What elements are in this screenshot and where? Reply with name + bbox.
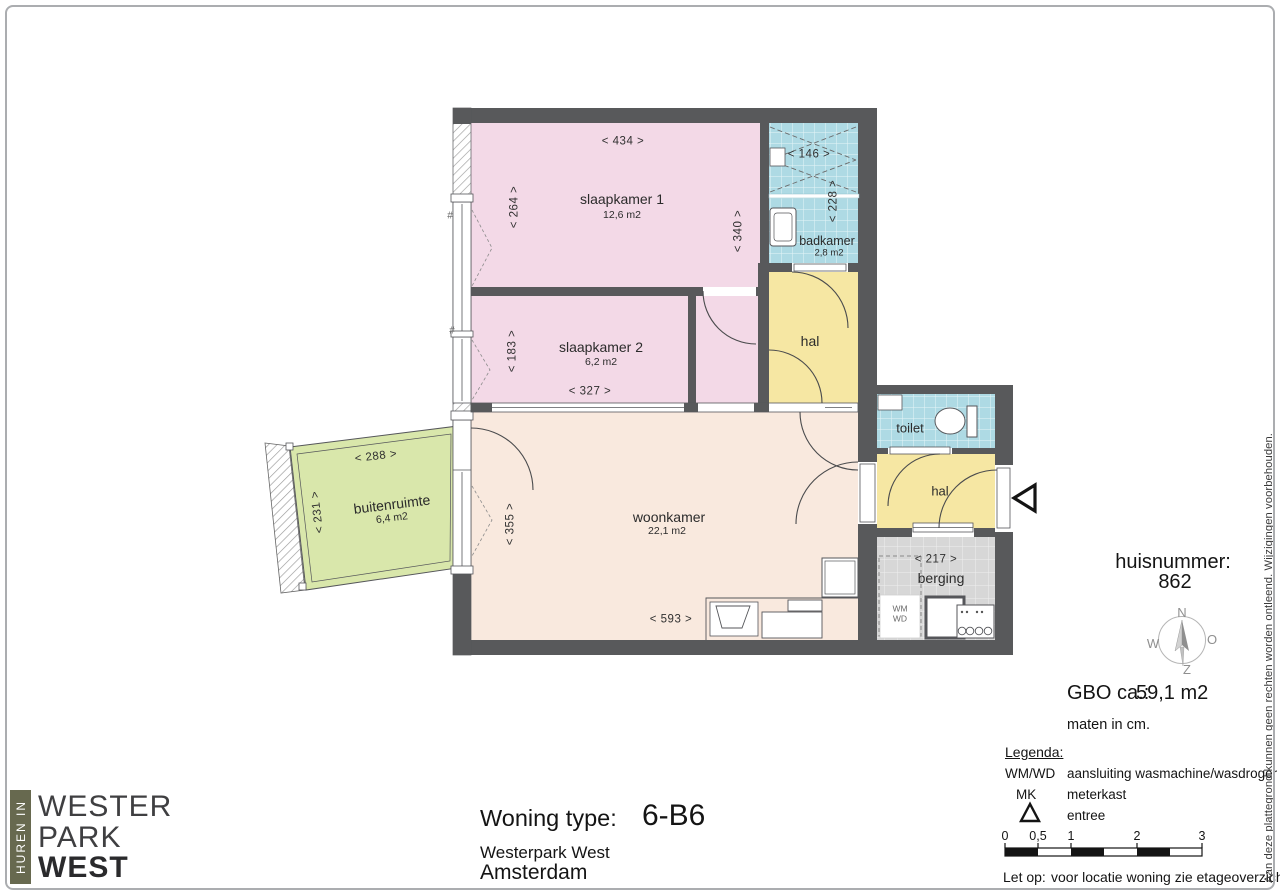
project-name: Westerpark West <box>480 843 610 863</box>
compass-east: O <box>1207 632 1217 647</box>
huisnummer-value: 862 <box>1158 571 1191 593</box>
room-label-berging: berging <box>918 571 965 587</box>
legend-key-mk: MK <box>1016 787 1036 802</box>
section-mark-1: # <box>447 210 453 221</box>
dim-593: < 593 > <box>650 614 693 627</box>
shower-unit-icon <box>770 148 785 166</box>
logo-huren-in-strip: HUREN IN <box>10 790 31 884</box>
dim-146: < 146 > <box>788 149 831 162</box>
letop-label: Let op: <box>1003 869 1046 885</box>
compass-rose: N O W Z <box>1147 605 1217 677</box>
dim-340: < 340 > <box>733 210 746 253</box>
entrance-door <box>997 468 1010 528</box>
section-mark-2: # <box>449 325 455 336</box>
legend-key-wmwd: WM/WD <box>1005 766 1055 781</box>
svg-text:1: 1 <box>1068 829 1075 843</box>
room-label-toilet: toilet <box>896 422 923 437</box>
room-label-woonkamer: woonkamer <box>633 510 705 526</box>
room-label-slaapkamer2: slaapkamer 2 <box>559 340 643 356</box>
svg-text:0,5: 0,5 <box>1029 829 1046 843</box>
entree-triangle-icon <box>1014 485 1035 511</box>
room-area-badkamer: 2,8 m2 <box>814 249 843 260</box>
room-label-badkamer: badkamer <box>799 234 855 248</box>
svg-text:3: 3 <box>1199 829 1206 843</box>
floorplan-page: { "page": { "disclaimer": "Aan deze plat… <box>0 0 1280 895</box>
dishwasher-icon <box>762 612 822 638</box>
compass-west: W <box>1147 636 1160 651</box>
compass-south: Z <box>1183 662 1191 677</box>
room-label-slaapkamer1: slaapkamer 1 <box>580 192 664 208</box>
dim-264: < 264 > <box>509 186 522 229</box>
room-area-slaapkamer2: 6,2 m2 <box>585 357 617 369</box>
tall-cabinet-icon <box>822 558 858 597</box>
room-label-hal-boven: hal <box>801 334 820 350</box>
city-name: Amsterdam <box>480 861 587 885</box>
shower-threshold <box>769 194 859 198</box>
toilet-basin-icon <box>878 395 902 410</box>
glass-wall-band <box>471 403 858 412</box>
svg-text:2: 2 <box>1134 829 1141 843</box>
room-area-woonkamer: 22,1 m2 <box>648 526 686 538</box>
logo-west: WEST <box>38 851 129 885</box>
legend-title: Legenda: <box>1005 744 1063 760</box>
gbo-value: 59,1 m2 <box>1136 682 1208 705</box>
legend-entree-triangle-icon <box>1021 804 1039 821</box>
wmwd-label: WM WD <box>892 604 907 623</box>
dim-228: < 228 > <box>828 180 841 223</box>
room-passage-fill <box>696 296 758 403</box>
left-exterior-wall <box>451 108 473 655</box>
svg-text:0: 0 <box>1002 829 1009 843</box>
dim-434: < 434 > <box>602 136 645 149</box>
floorplan-drawing: N O W Z 0 0,5 1 2 3 <box>0 0 1280 895</box>
kitchen-sink-icon <box>710 602 758 636</box>
wc-icon <box>935 408 965 434</box>
wd-text: WD <box>892 614 907 624</box>
dim-327: < 327 > <box>569 386 612 399</box>
disclaimer-vertical-text: Aan deze plattegrond kunnen geen rechten… <box>1263 433 1275 883</box>
room-label-hal-entree: hal <box>931 485 948 500</box>
logo-wester: WESTER <box>38 790 172 824</box>
legend-desc-entree: entree <box>1067 808 1105 823</box>
scale-bar: 0 0,5 1 2 3 <box>1002 829 1206 856</box>
woning-type-label: Woning type: <box>480 805 617 832</box>
legend-desc-wmwd: aansluiting wasmachine/wasdroger <box>1067 766 1277 781</box>
room-area-slaapkamer1: 12,6 m2 <box>603 210 641 222</box>
dim-355: < 355 > <box>505 503 518 546</box>
maten-note: maten in cm. <box>1067 717 1150 733</box>
dim-217: < 217 > <box>915 554 958 567</box>
compass-north: N <box>1177 605 1186 620</box>
logo-park: PARK <box>38 821 121 855</box>
logo-vertical-text: HUREN IN <box>14 800 28 874</box>
woning-type-value: 6-B6 <box>642 799 705 833</box>
letop-text: voor locatie woning zie etageoverzicht. <box>1051 869 1280 885</box>
wc-cistern <box>967 406 977 437</box>
legend-desc-mk: meterkast <box>1067 787 1126 802</box>
dim-183: < 183 > <box>507 330 520 373</box>
